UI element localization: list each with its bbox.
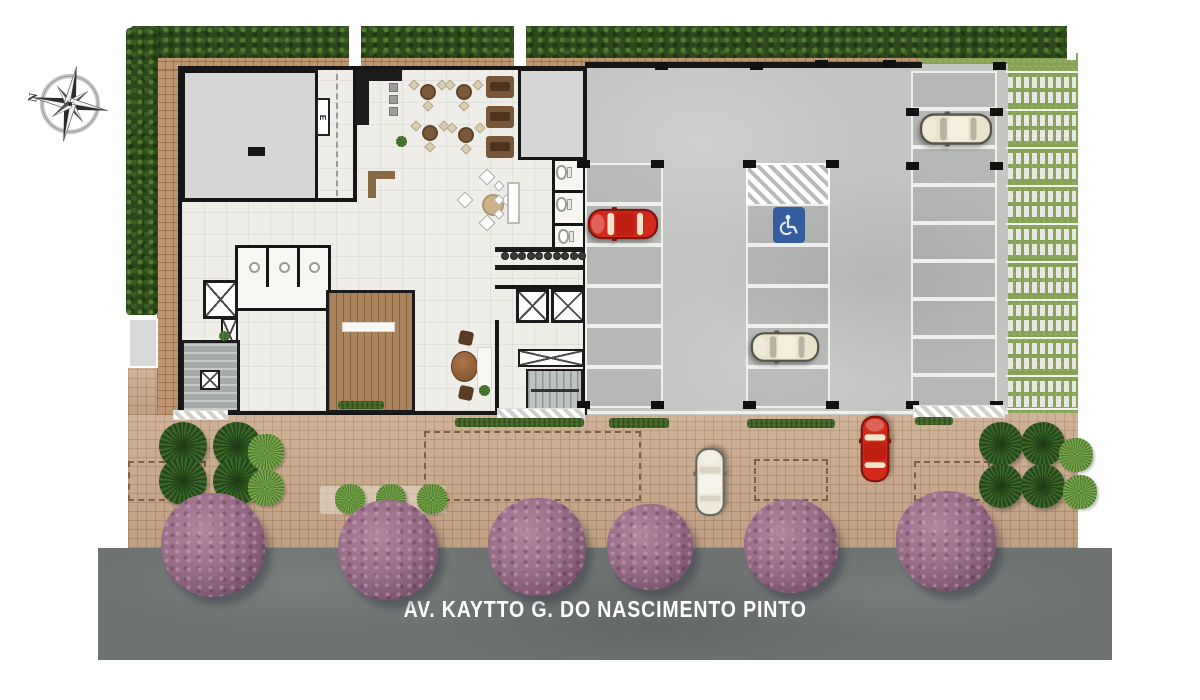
paver-separator xyxy=(1006,299,1078,301)
bar-stool xyxy=(501,252,509,260)
hedge-strip xyxy=(747,419,835,428)
car-body xyxy=(692,442,728,522)
elevator-shaft xyxy=(203,280,238,319)
site-plan: AV. KAYTTO G. DO NASCIMENTO PINTO E xyxy=(0,0,1200,700)
structural-column xyxy=(906,162,919,170)
structural-column xyxy=(815,60,828,68)
hedge-left xyxy=(126,28,158,315)
retaining-wall-panel xyxy=(128,318,158,368)
structural-column xyxy=(743,160,756,168)
paved-border-left xyxy=(157,56,178,415)
small-plant xyxy=(396,136,407,147)
terrace-table xyxy=(422,125,438,141)
car xyxy=(746,329,824,365)
bar-stool xyxy=(553,252,561,260)
elevator-shaft xyxy=(551,289,585,323)
hedge-top xyxy=(130,26,1072,58)
bar-stool xyxy=(570,252,578,260)
terrace-table xyxy=(458,127,474,143)
structural-column xyxy=(993,62,1006,70)
paver-separator xyxy=(1006,261,1078,263)
car-body xyxy=(746,329,824,365)
car-body xyxy=(586,203,660,244)
compass-rose: N xyxy=(19,53,121,155)
elevator-shaft xyxy=(516,289,549,323)
paver-blocks xyxy=(1008,266,1076,294)
paver-blocks xyxy=(1008,304,1076,332)
paver-blocks xyxy=(1008,342,1076,370)
structural-column xyxy=(655,62,668,70)
kitchen-counter xyxy=(356,70,369,125)
street-tree xyxy=(896,491,996,591)
paver-separator xyxy=(1006,223,1078,225)
kitchen-appliance xyxy=(389,107,398,116)
terrace-table xyxy=(420,84,436,100)
paver-separator xyxy=(1006,337,1078,339)
ornamental-grass xyxy=(979,422,1023,466)
structural-column xyxy=(651,160,664,168)
toilet xyxy=(558,229,569,244)
electrical-panel: E xyxy=(316,98,330,136)
street-tree xyxy=(488,498,586,596)
lounge-chair xyxy=(458,385,475,402)
palm-plant xyxy=(248,470,284,506)
lot-gap xyxy=(514,22,526,68)
reception-desk xyxy=(451,351,478,382)
ornamental-grass xyxy=(1021,464,1065,508)
parking-stall xyxy=(911,147,997,185)
reception-rug xyxy=(477,347,492,388)
parking-stall xyxy=(746,367,830,408)
car xyxy=(586,203,660,244)
palm-plant xyxy=(248,434,284,470)
sink xyxy=(249,262,260,273)
parking-stall xyxy=(746,204,830,245)
pavement-marking xyxy=(754,459,828,501)
paver-separator xyxy=(1006,147,1078,149)
hedge-strip xyxy=(609,418,669,428)
palm-plant xyxy=(1059,438,1093,472)
structural-column xyxy=(826,401,839,409)
electrical-label: E xyxy=(319,114,328,119)
parking-stall xyxy=(911,261,997,299)
bath-divider xyxy=(552,223,586,226)
paver-blocks xyxy=(1008,190,1076,218)
deck-table xyxy=(342,322,395,332)
booth-seat xyxy=(486,136,514,158)
booth-seat xyxy=(486,106,514,128)
palm-plant xyxy=(417,484,447,514)
no-parking-hatch xyxy=(746,163,830,206)
bar-stool xyxy=(510,252,518,260)
small-plant xyxy=(479,385,490,396)
bath-divider xyxy=(552,190,586,193)
parking-stall xyxy=(911,299,997,337)
stair-rail xyxy=(531,389,579,392)
booth-seat xyxy=(486,76,514,98)
duct-shaft xyxy=(518,349,584,367)
street-tree xyxy=(161,493,265,597)
structural-column xyxy=(743,401,756,409)
bar-stool xyxy=(527,252,535,260)
structural-column xyxy=(990,162,1003,170)
toilet xyxy=(556,197,567,212)
parking-stall xyxy=(911,223,997,261)
structural-column xyxy=(883,60,896,68)
lot-gap xyxy=(349,22,361,68)
parking-stall xyxy=(911,185,997,223)
toilet-tank xyxy=(569,231,574,242)
small-plant xyxy=(219,331,229,341)
paver-separator xyxy=(1006,185,1078,187)
car-body xyxy=(857,410,892,488)
paver-blocks xyxy=(1008,76,1076,104)
pavement-marking xyxy=(424,431,641,501)
hedge-strip xyxy=(915,417,953,425)
kitchen-appliance xyxy=(389,95,398,104)
structural-column xyxy=(826,160,839,168)
bar-stool xyxy=(544,252,552,260)
car xyxy=(916,110,996,148)
interior-wall xyxy=(182,198,357,202)
parking-stall xyxy=(746,245,830,286)
deck-planter xyxy=(338,401,384,409)
paver-blocks xyxy=(1008,228,1076,256)
bath-divider xyxy=(266,245,269,287)
paver-separator xyxy=(1006,375,1078,377)
paver-blocks xyxy=(1008,114,1076,142)
paver-separator xyxy=(1006,408,1078,410)
compass-north-label: N xyxy=(25,92,40,103)
palm-plant xyxy=(1063,475,1097,509)
parking-stall xyxy=(585,245,663,286)
toilet-tank xyxy=(567,199,572,210)
toilet-tank xyxy=(567,167,572,178)
paver-separator xyxy=(1006,109,1078,111)
parking-stall xyxy=(585,286,663,326)
structural-column xyxy=(651,401,664,409)
room-technical xyxy=(518,68,586,160)
street-tree xyxy=(744,499,838,593)
paver-blocks xyxy=(1008,152,1076,180)
structural-column xyxy=(577,160,590,168)
kitchen-appliance xyxy=(389,83,398,92)
lounge-chair xyxy=(458,330,475,347)
interior-wall xyxy=(495,320,499,414)
paver-blocks xyxy=(1008,380,1076,408)
parking-stall xyxy=(911,375,997,408)
car xyxy=(692,442,728,522)
car-body xyxy=(916,110,996,148)
compass-icon: N xyxy=(19,53,121,155)
sink xyxy=(279,262,290,273)
parking-stall xyxy=(911,71,997,109)
parking-stall xyxy=(911,337,997,375)
toilet xyxy=(556,165,567,180)
room-storage xyxy=(182,70,318,201)
street-name-label: AV. KAYTTO G. DO NASCIMENTO PINTO xyxy=(403,586,806,623)
interior-wall xyxy=(248,147,265,156)
paver-separator xyxy=(1006,71,1078,73)
high-table xyxy=(507,182,520,224)
bath-divider xyxy=(297,245,300,287)
bench-l xyxy=(368,171,376,198)
parking-stall xyxy=(585,326,663,367)
corridor-guide-line xyxy=(336,74,338,196)
bar-counter xyxy=(495,265,583,270)
parking-stall xyxy=(746,286,830,326)
structural-column xyxy=(750,62,763,70)
lot-gap xyxy=(1067,20,1076,60)
bathrooms-mid xyxy=(235,245,331,311)
street-tree xyxy=(607,504,693,590)
sink xyxy=(309,262,320,273)
parking-stall xyxy=(585,163,663,204)
street-tree xyxy=(338,500,438,600)
hedge-strip xyxy=(455,418,584,427)
wood-deck-room xyxy=(326,290,415,413)
ornamental-grass xyxy=(979,464,1023,508)
car xyxy=(857,410,892,488)
duct-shaft xyxy=(200,370,220,390)
driveway-apron xyxy=(173,410,228,420)
terrace-table xyxy=(456,84,472,100)
